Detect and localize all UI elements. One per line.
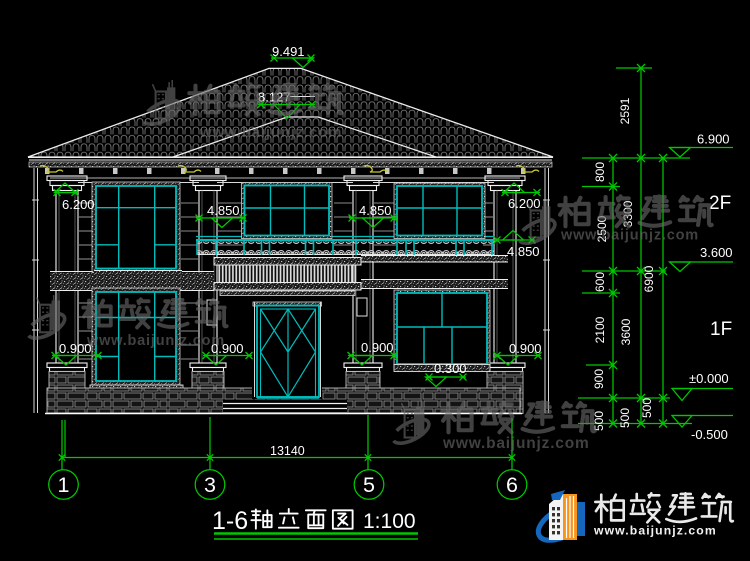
svg-text:500: 500 bbox=[640, 398, 654, 418]
svg-text:0.300: 0.300 bbox=[434, 361, 467, 376]
svg-text:www.baijunjz.com: www.baijunjz.com bbox=[560, 228, 699, 244]
svg-text:-0.500: -0.500 bbox=[691, 427, 728, 442]
svg-text:13140: 13140 bbox=[270, 444, 305, 458]
svg-text:5: 5 bbox=[363, 473, 375, 497]
svg-text:800: 800 bbox=[593, 162, 607, 182]
svg-text:0.900: 0.900 bbox=[361, 340, 394, 355]
svg-text:0.900: 0.900 bbox=[509, 341, 542, 356]
svg-text:6.900: 6.900 bbox=[697, 132, 730, 147]
svg-text:1-6: 1-6 bbox=[212, 507, 248, 535]
svg-text:3600: 3600 bbox=[619, 318, 633, 345]
svg-text:600: 600 bbox=[593, 272, 607, 292]
svg-text:500: 500 bbox=[592, 411, 606, 431]
svg-text:www.baijunjz.com: www.baijunjz.com bbox=[199, 124, 342, 141]
svg-text:6900: 6900 bbox=[642, 265, 656, 292]
svg-text:±0.000: ±0.000 bbox=[689, 371, 729, 386]
svg-text:www.baijunjz.com: www.baijunjz.com bbox=[86, 333, 225, 349]
svg-text:1F: 1F bbox=[710, 319, 732, 340]
svg-text:www.baijunjz.com: www.baijunjz.com bbox=[442, 435, 590, 452]
svg-text:1:100: 1:100 bbox=[363, 510, 416, 533]
svg-text:900: 900 bbox=[592, 369, 606, 389]
svg-text:4.850: 4.850 bbox=[207, 203, 240, 218]
svg-text:2100: 2100 bbox=[593, 316, 607, 343]
svg-text:6.200: 6.200 bbox=[62, 197, 95, 212]
svg-text:www.baijunjz.com: www.baijunjz.com bbox=[593, 524, 717, 538]
svg-text:2F: 2F bbox=[709, 193, 731, 214]
svg-text:4.850: 4.850 bbox=[359, 203, 392, 218]
svg-text:1: 1 bbox=[58, 473, 70, 497]
svg-text:3: 3 bbox=[204, 473, 216, 497]
svg-text:6.200: 6.200 bbox=[508, 196, 541, 211]
svg-text:2591: 2591 bbox=[618, 97, 632, 124]
svg-text:6: 6 bbox=[506, 473, 518, 497]
svg-text:9.491: 9.491 bbox=[272, 44, 305, 59]
svg-text:500: 500 bbox=[618, 408, 632, 428]
svg-text:4.850: 4.850 bbox=[507, 244, 540, 259]
svg-text:3.600: 3.600 bbox=[700, 245, 733, 260]
